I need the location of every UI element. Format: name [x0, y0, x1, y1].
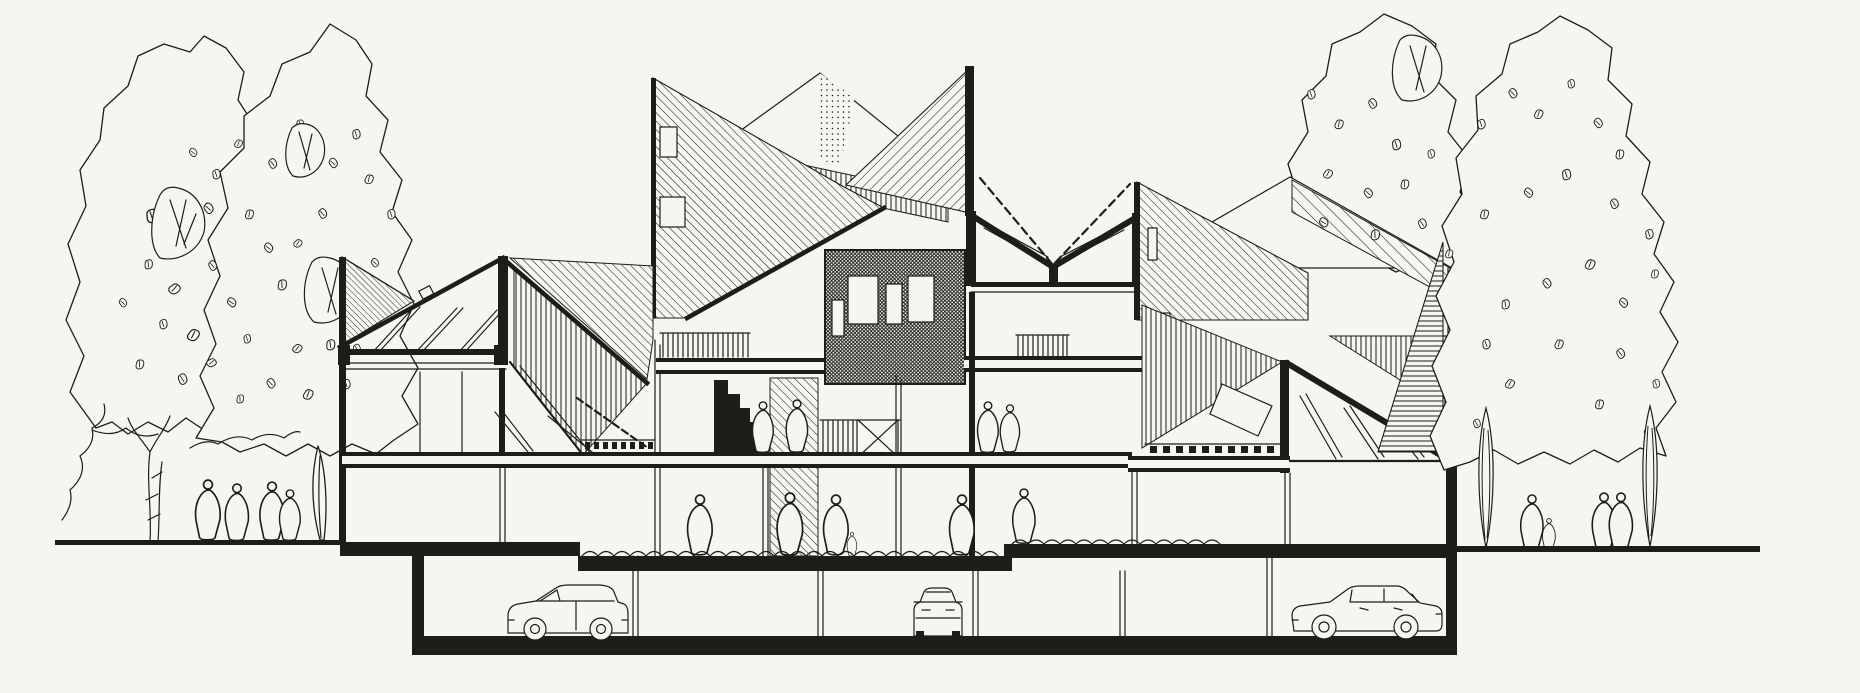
section-drawing — [0, 0, 1860, 693]
ground-slab-left — [340, 542, 580, 556]
clerestory-core — [825, 250, 965, 384]
ground-line-left — [55, 540, 340, 545]
gable-window — [660, 197, 685, 227]
mast — [498, 256, 508, 360]
drawing-sheet — [0, 0, 1860, 693]
basement-right-wall — [1446, 556, 1457, 638]
courtyard-slab — [578, 556, 1010, 571]
gable-window — [660, 127, 677, 157]
basement-left-wall — [412, 556, 424, 638]
ground-slab-right — [1008, 544, 1457, 558]
ground-line-right — [1457, 546, 1760, 552]
left-exterior-wall — [339, 257, 346, 542]
basement-floor-slab — [412, 636, 1457, 655]
